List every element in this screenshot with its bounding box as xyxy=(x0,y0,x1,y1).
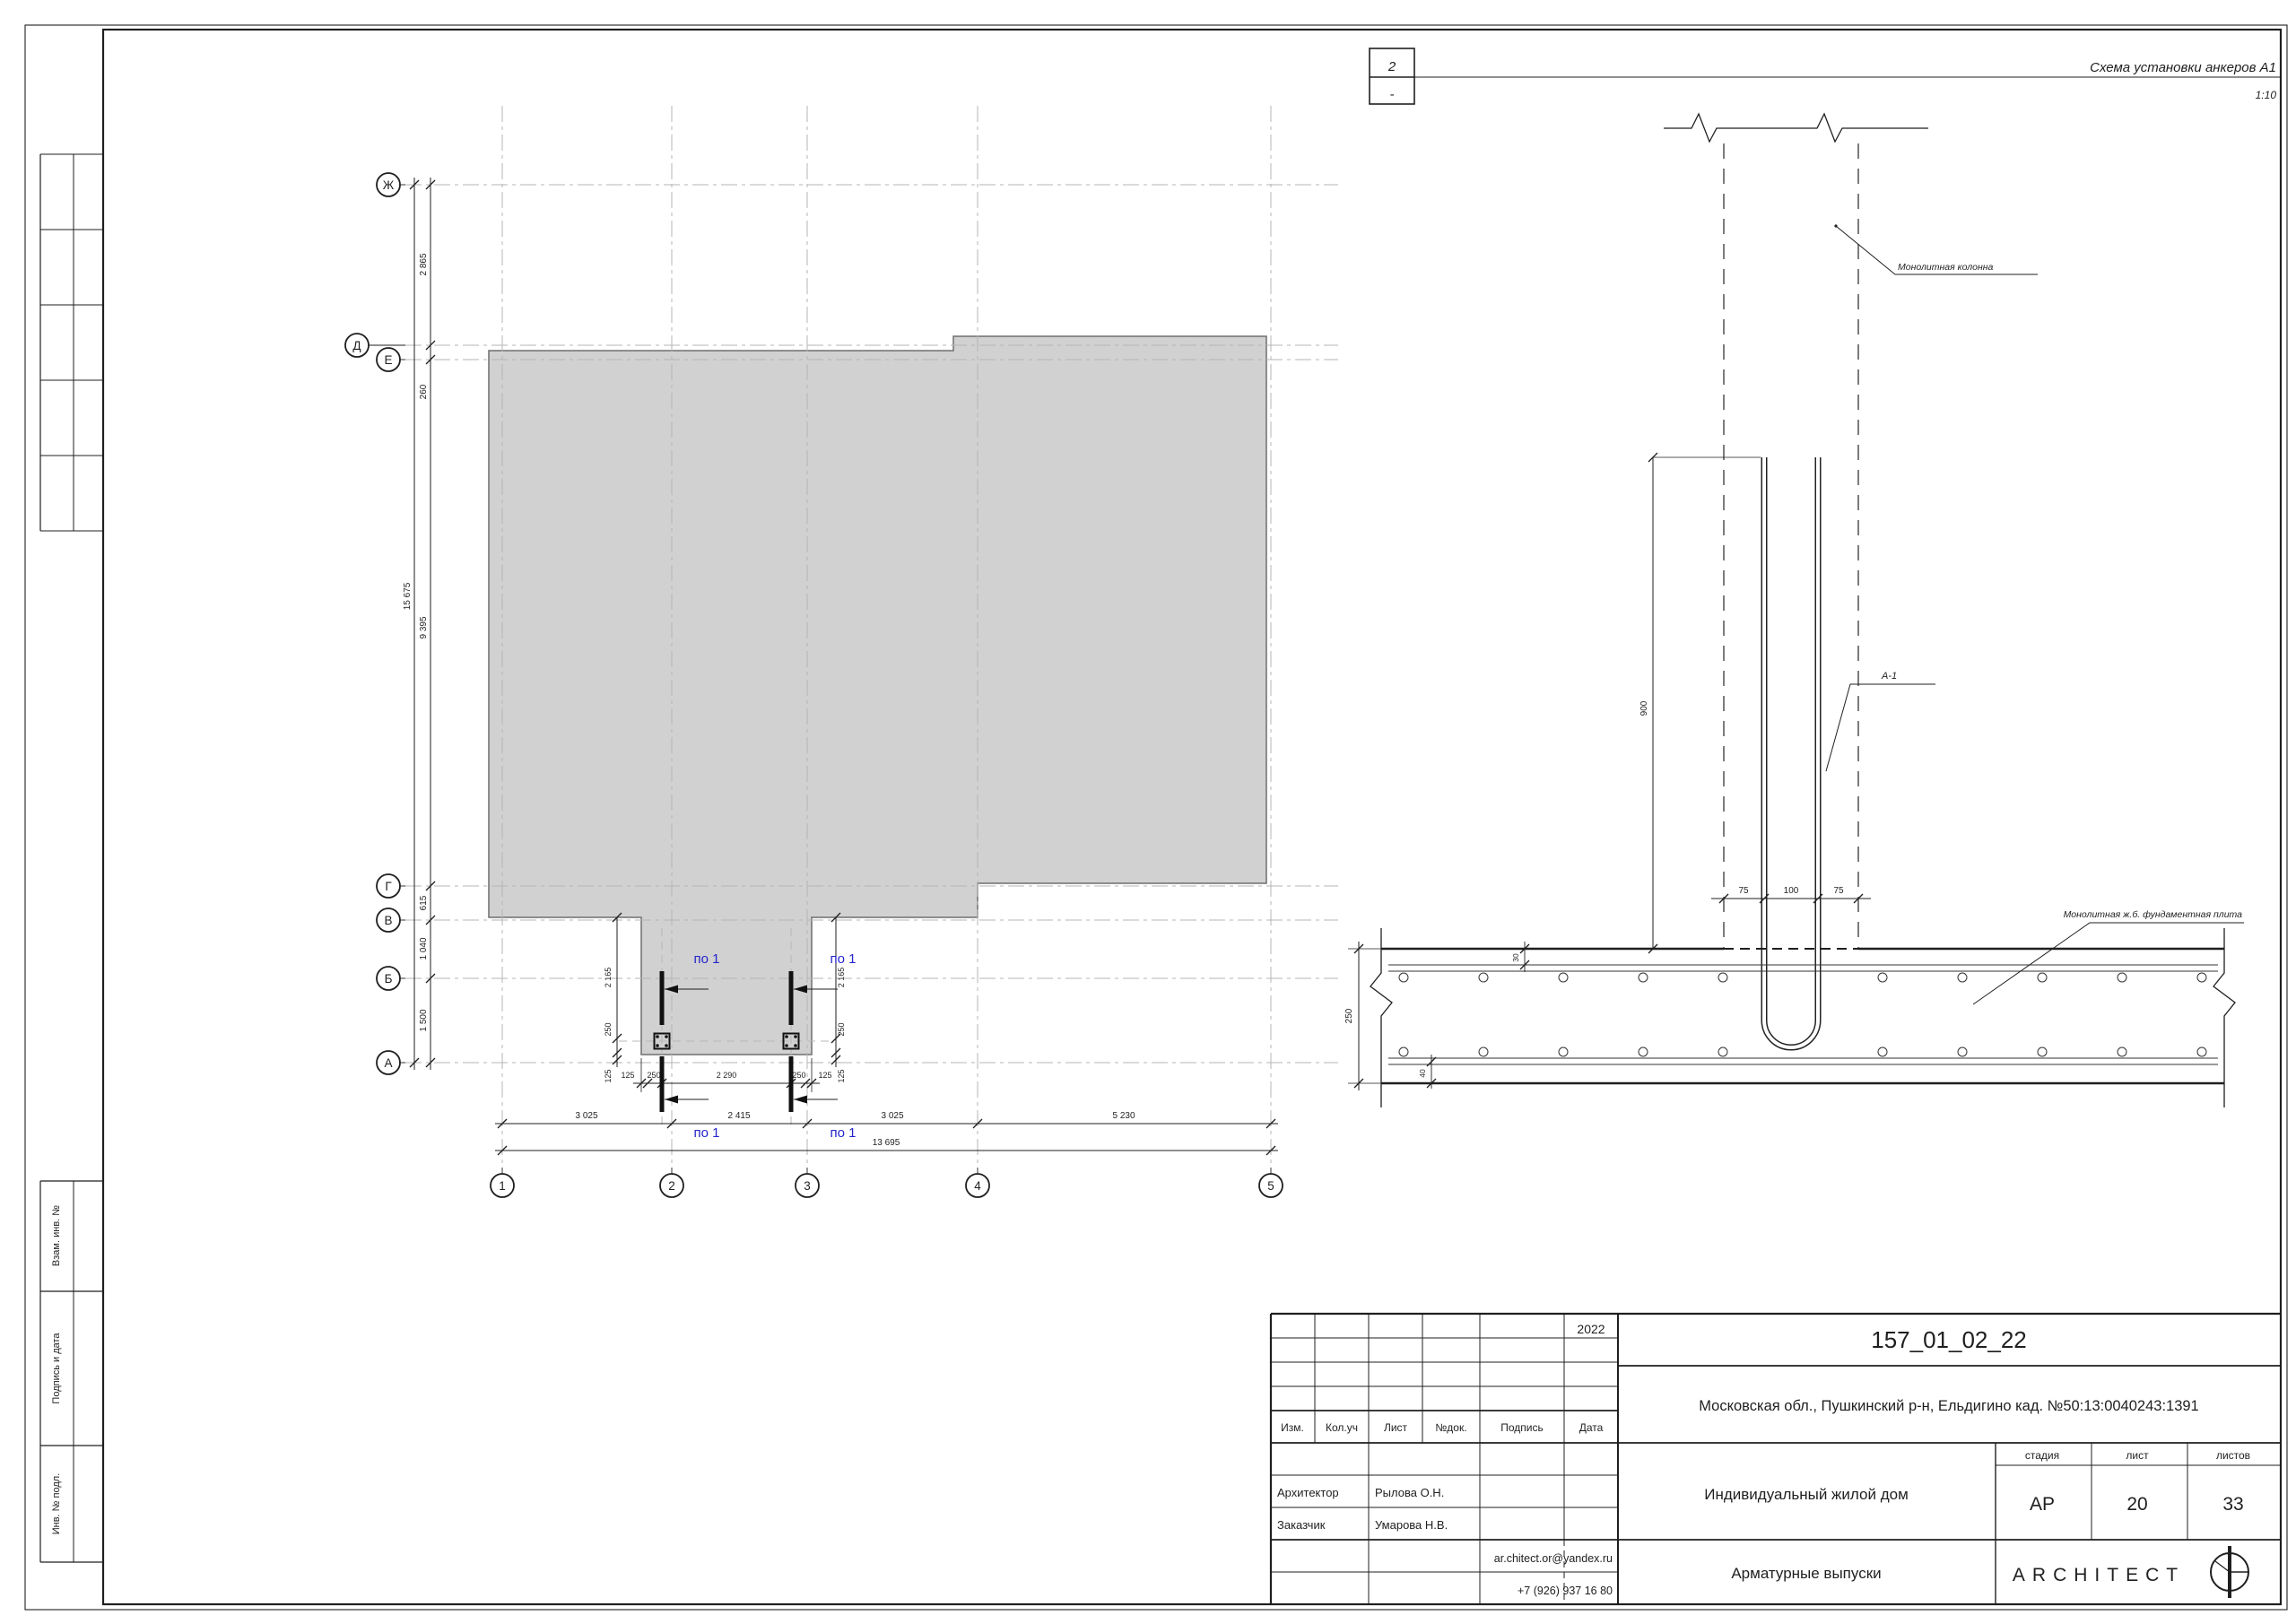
rebar-section-dot xyxy=(2197,1047,2206,1056)
axis-bubble-label: Б xyxy=(385,972,393,986)
stamp-sheet-header: лист xyxy=(2126,1449,2149,1462)
anchor-rebar-core xyxy=(1764,457,1818,1047)
title-block: Изм. Кол.уч Лист №док. Подпись Дата 2022… xyxy=(1277,1322,2250,1597)
anchor-bolt xyxy=(785,1044,788,1047)
rebar-section-dot xyxy=(1399,1047,1408,1056)
dim: 9 395 xyxy=(419,616,429,638)
dim: 1 040 xyxy=(419,937,429,960)
rebar-section-dot xyxy=(1399,973,1408,982)
stamp-sheets-header: листов xyxy=(2216,1449,2250,1462)
stamp-col-header: Дата xyxy=(1579,1421,1604,1434)
rebar-section-dot xyxy=(1958,1047,1967,1056)
rebar-section-dot xyxy=(1479,1047,1488,1056)
anchor-rebar-outline xyxy=(1764,457,1818,1047)
dim-rebar-height: 900 xyxy=(1639,700,1649,716)
cut-arrow-head xyxy=(794,1096,807,1104)
node-sub: - xyxy=(1390,87,1395,102)
dim: 125 xyxy=(604,1069,613,1082)
axis-bubble-label: Е xyxy=(384,353,392,367)
axis-bubble-label: В xyxy=(384,914,392,927)
axis-bubble-label: Д xyxy=(352,339,361,352)
brand-logo-text: ARCHITECT xyxy=(2013,1565,2185,1585)
dim: 125 xyxy=(621,1071,634,1080)
stamp-stage-header: стадия xyxy=(2025,1449,2059,1462)
node-marker: 2 - Схема установки анкеров А1 1:10 xyxy=(1387,59,2276,102)
stamp-col-header: Изм. xyxy=(1281,1421,1304,1434)
anchor-bolt xyxy=(785,1035,788,1038)
rebar-section-dot xyxy=(1878,1047,1887,1056)
stamp-email: ar.chitect.or@yandex.ru xyxy=(1494,1552,1613,1565)
label-monolithic-column: Монолитная колонна xyxy=(1898,262,1994,273)
dim: 615 xyxy=(419,895,429,910)
dim: 250 xyxy=(604,1022,613,1036)
leader-rebar xyxy=(1826,684,1935,771)
dim: 125 xyxy=(837,1069,846,1082)
stamp-col-header: Кол.уч xyxy=(1326,1421,1358,1434)
slab-edge-break xyxy=(2213,928,2235,1107)
dim: 2 415 xyxy=(727,1111,750,1121)
drawing-scale: 1:10 xyxy=(2256,89,2277,101)
dim: 75 xyxy=(1833,886,1844,896)
dim: 5 230 xyxy=(1112,1111,1135,1121)
rebar-section-dot xyxy=(2197,973,2206,982)
rebar-section-dot xyxy=(1639,1047,1648,1056)
anchor-bolt xyxy=(794,1044,797,1047)
dim: 2 165 xyxy=(837,968,846,988)
stamp-col-header: Лист xyxy=(1384,1421,1408,1434)
cut-label: по 1 xyxy=(694,951,720,967)
anchor-bolt xyxy=(665,1035,668,1038)
rebar-section-dot xyxy=(1878,973,1887,982)
stamp-project-code: 157_01_02_22 xyxy=(1871,1326,2027,1353)
dim: 75 xyxy=(1738,886,1749,896)
strip-label: Подпись и дата xyxy=(51,1333,62,1404)
cut-label: по 1 xyxy=(831,951,857,967)
dim: 100 xyxy=(1784,886,1799,896)
anchor-bolt xyxy=(656,1044,659,1047)
rebar-section-dot xyxy=(1639,973,1648,982)
section-annotations: 75 100 75 900 250 30 40 Монолитная колон… xyxy=(1344,262,2242,1078)
foundation-slab-plan xyxy=(489,336,1266,1055)
axis-bubble-label: 5 xyxy=(1267,1179,1274,1193)
slab-edge-break xyxy=(1370,928,1392,1107)
dim-bottom-cover: 40 xyxy=(1418,1069,1427,1078)
stamp-name: Умарова Н.В. xyxy=(1375,1518,1448,1532)
col-axis-labels: 1 2 3 4 5 xyxy=(499,1179,1274,1193)
rebar-section-dot xyxy=(1479,973,1488,982)
anchor-bolt xyxy=(665,1044,668,1047)
stamp-col-header: №док. xyxy=(1435,1421,1466,1434)
axis-bubble-label: 1 xyxy=(499,1179,506,1193)
stamp-name: Рылова О.Н. xyxy=(1375,1486,1444,1499)
drawing-canvas: 2 - Схема установки анкеров А1 1:10 Ж Д … xyxy=(0,0,2296,1624)
rebar-section-dot xyxy=(2118,1047,2126,1056)
rebar-section-dot xyxy=(2038,973,2047,982)
axis-bubble-label: Г xyxy=(385,880,392,893)
dim: 250 xyxy=(792,1071,805,1080)
column-break-line xyxy=(1664,114,1928,142)
dim-slab-thickness: 250 xyxy=(1344,1008,1354,1023)
rebar-section-dot xyxy=(2038,1047,2047,1056)
dim: 260 xyxy=(419,384,429,399)
rebar-section-dot xyxy=(1718,1047,1727,1056)
drawing-title: Схема установки анкеров А1 xyxy=(2090,60,2276,75)
node-number: 2 xyxy=(1387,59,1396,74)
leader-dot xyxy=(1834,224,1837,227)
cut-label: по 1 xyxy=(831,1125,857,1141)
axis-bubble-label: 4 xyxy=(974,1179,981,1193)
row-axis-labels: Ж Д Е Г В Б А xyxy=(352,178,394,1070)
strip-label: Инв. № подл. xyxy=(51,1473,62,1535)
rebar-section-dot xyxy=(1559,1047,1568,1056)
dim: 2 865 xyxy=(419,253,429,275)
dim-total-left: 15 675 xyxy=(403,582,413,610)
anchor-bolt xyxy=(656,1035,659,1038)
dim-total-bottom: 13 695 xyxy=(873,1138,900,1148)
rebar-section-dot xyxy=(1718,973,1727,982)
dim: 250 xyxy=(647,1071,660,1080)
stamp-role: Архитектор xyxy=(1277,1486,1339,1499)
dim: 2 165 xyxy=(604,968,613,988)
stamp-sheets-value: 33 xyxy=(2222,1494,2243,1515)
stamp-role: Заказчик xyxy=(1277,1518,1326,1532)
slab-outline xyxy=(489,336,1266,1055)
strip-label: Взам. инв. № xyxy=(51,1205,62,1266)
axis-bubble-label: 3 xyxy=(804,1179,811,1193)
stamp-year: 2022 xyxy=(1577,1322,1605,1336)
stamp-col-header: Подпись xyxy=(1500,1421,1544,1434)
label-foundation-slab: Монолитная ж.б. фундаментная плита xyxy=(2064,909,2243,920)
axis-bubble-label: А xyxy=(384,1056,392,1070)
stamp-sheet-value: 20 xyxy=(2126,1494,2147,1515)
side-strip-labels: Взам. инв. № Подпись и дата Инв. № подл. xyxy=(51,1205,62,1535)
stamp-object: Индивидуальный жилой дом xyxy=(1704,1486,1909,1503)
rebar-section-dot xyxy=(1958,973,1967,982)
dim: 1 500 xyxy=(419,1009,429,1031)
rebar-section-dot xyxy=(2118,973,2126,982)
leader-slab xyxy=(1973,923,2244,1004)
dim: 2 290 xyxy=(717,1071,737,1080)
rebar-section-dot xyxy=(1559,973,1568,982)
dim: 250 xyxy=(837,1022,846,1036)
stamp-sheet-title: Арматурные выпуски xyxy=(1731,1565,1881,1582)
dim: 3 025 xyxy=(881,1111,903,1121)
anchor-bolt xyxy=(794,1035,797,1038)
dim-top-cover: 30 xyxy=(1511,953,1520,962)
stamp-phone: +7 (926) 937 16 80 xyxy=(1518,1585,1613,1597)
dim: 3 025 xyxy=(575,1111,597,1121)
cut-label: по 1 xyxy=(694,1125,720,1141)
axis-bubble-label: Ж xyxy=(383,178,395,192)
dim: 125 xyxy=(818,1071,831,1080)
stamp-address: Московская обл., Пушкинский р-н, Ельдиги… xyxy=(1699,1398,2198,1414)
drawing-sheet: 2 - Схема установки анкеров А1 1:10 Ж Д … xyxy=(0,0,2296,1624)
line xyxy=(2215,1561,2230,1572)
axis-bubble-label: 2 xyxy=(668,1179,675,1193)
stamp-stage-value: АР xyxy=(2030,1494,2055,1515)
label-rebar-mark: А-1 xyxy=(1881,671,1897,682)
